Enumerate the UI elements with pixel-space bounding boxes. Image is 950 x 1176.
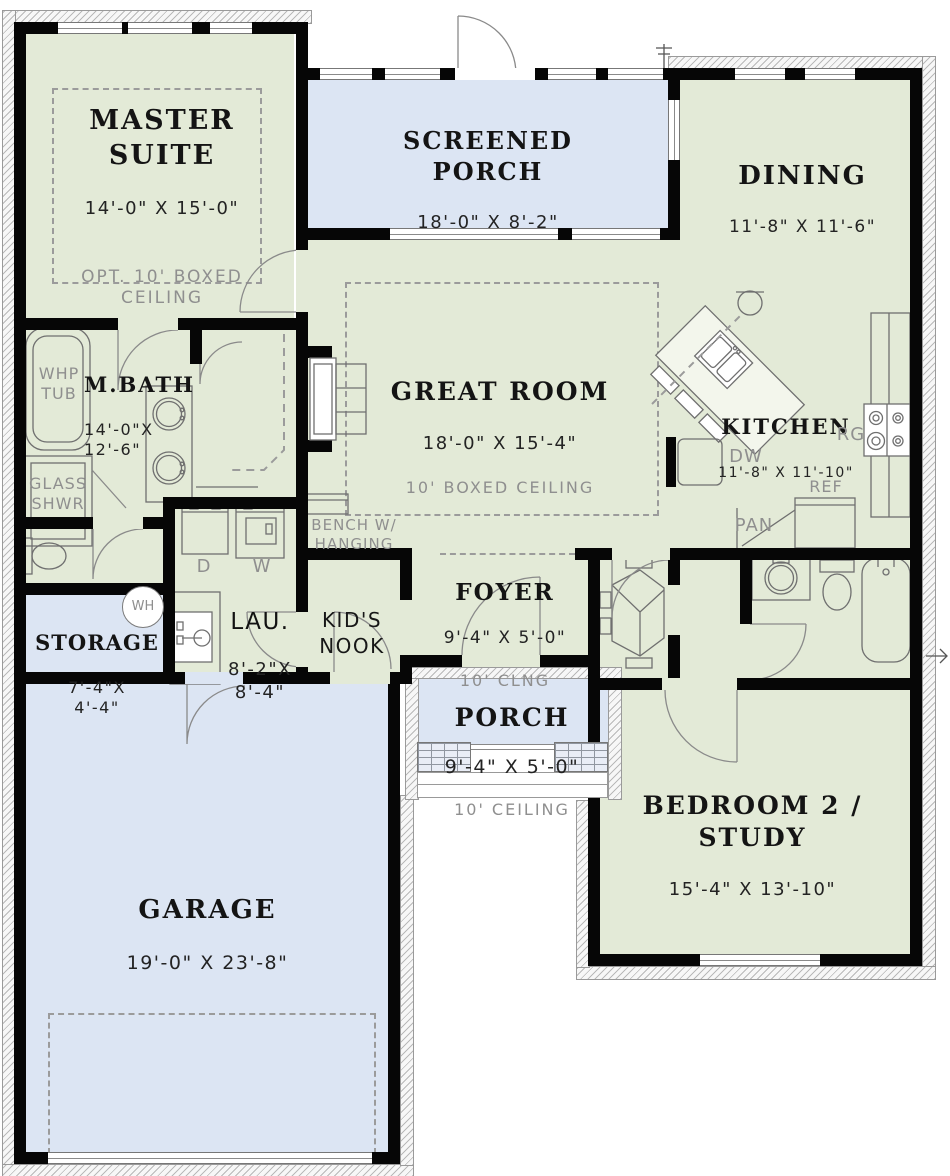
room-dims: 14'-0" X 15'-0" bbox=[52, 197, 272, 220]
opening-bedroom2-door bbox=[662, 678, 737, 690]
label-pantry: PAN bbox=[730, 515, 778, 538]
room-dims: 18'-0" X 15'-4" bbox=[380, 432, 620, 455]
wall-right-exterior bbox=[910, 68, 922, 966]
window bbox=[700, 954, 820, 966]
hatch-band-garage-right bbox=[400, 795, 414, 1166]
label-dishwasher: DW bbox=[726, 446, 766, 469]
room-note: OPT. 10' BOXED CEILING bbox=[52, 267, 272, 311]
screen-panel bbox=[320, 68, 372, 80]
room-name: KID'S NOOK bbox=[300, 608, 404, 659]
room-dims: 9'-4" X 5'-0" bbox=[422, 755, 602, 779]
label-porch: PORCH 9'-4" X 5'-0" 10' CEILING bbox=[422, 682, 602, 841]
room-dims: 11'-8" X 11'-6" bbox=[700, 217, 905, 239]
room-name: BEDROOM 2 / STUDY bbox=[610, 790, 895, 854]
room-name: FOYER bbox=[415, 578, 595, 607]
opening-toilet-door bbox=[93, 517, 143, 529]
label-kids-nook: KID'S NOOK bbox=[300, 588, 404, 680]
room-dims: 8'-2"X 8'-4" bbox=[206, 658, 314, 704]
window bbox=[805, 68, 855, 80]
label-whirlpool-tub: WHP TUB bbox=[30, 364, 88, 404]
wall-garage-right bbox=[388, 672, 400, 1164]
label-dryer: D bbox=[192, 556, 216, 579]
room-dims: 18'-0" X 8'-2" bbox=[368, 211, 608, 234]
label-great-room: GREAT ROOM 18'-0" X 15'-4" 10' BOXED CEI… bbox=[380, 356, 620, 519]
window bbox=[210, 22, 252, 34]
wall-bath2-left bbox=[740, 548, 752, 624]
opening-master-door bbox=[296, 250, 308, 312]
label-glass-shower: GLASS SHWR bbox=[26, 474, 90, 514]
wall-kitchen-hall bbox=[670, 548, 910, 560]
window bbox=[735, 68, 785, 80]
opening-hall-entry bbox=[612, 548, 670, 560]
opening-porch-door bbox=[455, 68, 535, 80]
label-washer: W bbox=[250, 556, 274, 579]
room-name: STORAGE bbox=[22, 630, 172, 657]
wall-left-exterior bbox=[14, 22, 26, 1164]
screen-panel bbox=[548, 68, 596, 80]
hatch-band-right bbox=[922, 56, 936, 980]
room-dims: 9'-4" X 5'-0" bbox=[415, 628, 595, 650]
room-note: 10' CEILING bbox=[422, 800, 602, 820]
label-laundry: LAU. 8'-2"X 8'-4" bbox=[206, 588, 314, 725]
label-screened-porch: SCREENED PORCH 18'-0" X 8'-2" bbox=[368, 106, 608, 255]
room-name: M.BATH bbox=[84, 372, 204, 399]
label-master-suite: MASTER SUITE 14'-0" X 15'-0" OPT. 10' BO… bbox=[52, 84, 272, 331]
label-range: RG bbox=[834, 424, 868, 447]
garage-door-track-outline bbox=[48, 1013, 376, 1154]
room-dims: 14'-0"X 12'-6" bbox=[84, 420, 204, 461]
room-name: DINING bbox=[700, 160, 905, 193]
wall-bedroom2-top bbox=[588, 678, 910, 690]
room-toilet bbox=[26, 529, 163, 583]
screen-panel bbox=[608, 68, 663, 80]
room-name: MASTER SUITE bbox=[52, 104, 272, 173]
label-master-bath: M.BATH 14'-0"X 12'-6" bbox=[84, 352, 204, 481]
label-refrigerator: REF bbox=[802, 477, 850, 497]
window bbox=[58, 22, 122, 34]
room-name: SCREENED PORCH bbox=[368, 126, 608, 187]
hatch-band-bottom-garage bbox=[2, 1164, 414, 1176]
wall-center-spine bbox=[296, 22, 308, 684]
window bbox=[668, 100, 680, 160]
label-garage: GARAGE 19'-0" X 23'-8" bbox=[90, 874, 325, 996]
room-name: PORCH bbox=[422, 702, 602, 734]
wall-laundry-top bbox=[163, 497, 306, 509]
room-note: 10' BOXED CEILING bbox=[380, 478, 620, 498]
window bbox=[128, 22, 192, 34]
hatch-band-bottom-bedroom2 bbox=[576, 966, 936, 980]
room-hall-bath2 bbox=[600, 560, 910, 678]
label-storage: STORAGE 7'-4"X 4'-4" bbox=[22, 610, 172, 739]
room-dims: 19'-0" X 23'-8" bbox=[90, 951, 325, 975]
room-dims: 15'-4" X 13'-10" bbox=[610, 878, 895, 901]
room-name: LAU. bbox=[206, 608, 314, 637]
opening-closet2-door bbox=[668, 585, 680, 635]
room-dims: 7'-4"X 4'-4" bbox=[22, 678, 172, 719]
garage-door bbox=[48, 1152, 372, 1164]
room-name: GARAGE bbox=[90, 894, 325, 927]
foyer-open-beam bbox=[440, 553, 575, 555]
label-dining: DINING 11'-8" X 11'-6" bbox=[700, 140, 905, 259]
wall-dining-top bbox=[668, 68, 922, 80]
screen-panel bbox=[385, 68, 440, 80]
label-bedroom2: BEDROOM 2 / STUDY 15'-4" X 13'-10" bbox=[610, 770, 895, 921]
label-bench: BENCH W/ HANGING bbox=[302, 516, 406, 554]
floor-plan: MASTER SUITE 14'-0" X 15'-0" OPT. 10' BO… bbox=[0, 0, 950, 1176]
room-name: GREAT ROOM bbox=[380, 376, 620, 408]
water-heater-icon: WH bbox=[122, 586, 164, 628]
